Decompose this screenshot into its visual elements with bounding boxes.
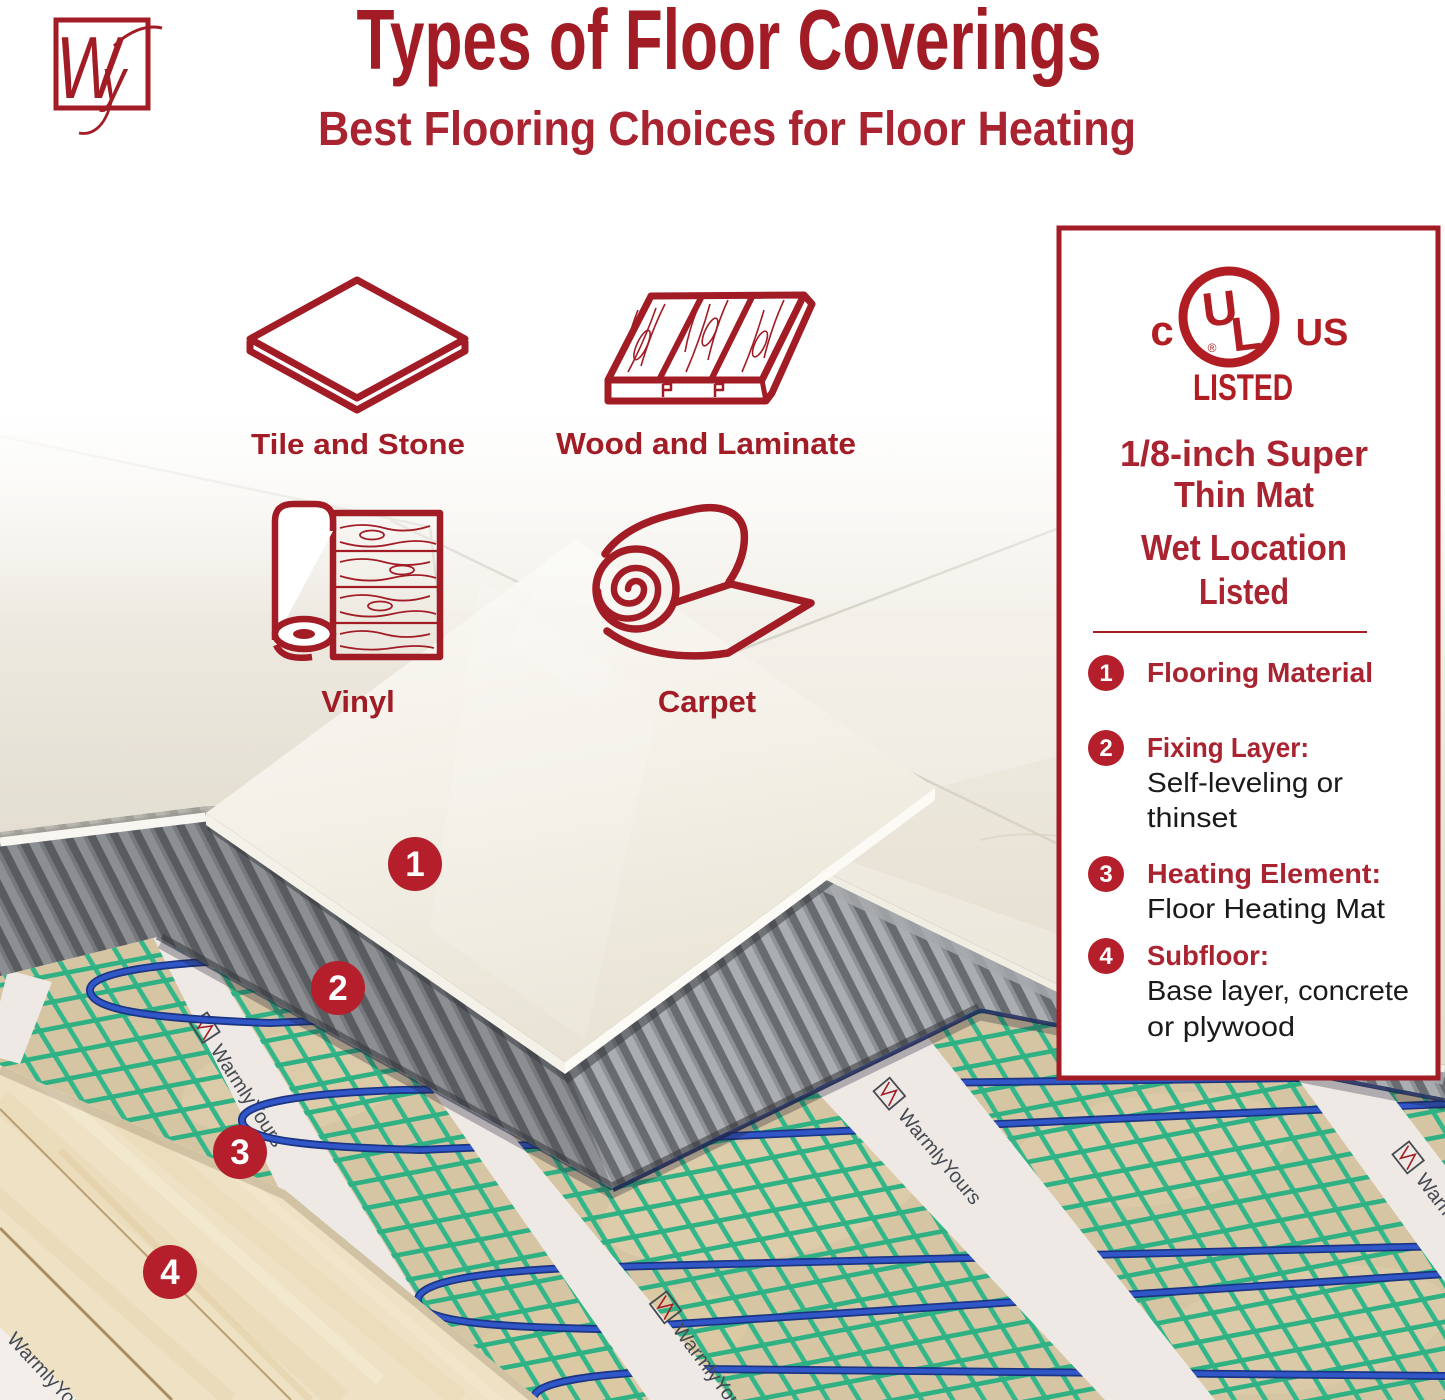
svg-text:Listed: Listed	[1199, 571, 1289, 612]
svg-text:Wet Location: Wet Location	[1141, 527, 1347, 568]
svg-text:2: 2	[328, 969, 347, 1008]
svg-text:Floor Heating Mat: Floor Heating Mat	[1147, 893, 1385, 924]
svg-text:Vinyl: Vinyl	[321, 684, 395, 719]
svg-text:1: 1	[405, 845, 424, 884]
svg-text:Fixing Layer:: Fixing Layer:	[1147, 732, 1309, 763]
svg-text:3: 3	[1099, 861, 1112, 888]
svg-text:c: c	[1150, 307, 1173, 354]
svg-text:1: 1	[1099, 660, 1112, 687]
svg-text:Wood and Laminate: Wood and Laminate	[556, 426, 856, 461]
svg-text:US: US	[1296, 312, 1349, 354]
svg-text:Subfloor:: Subfloor:	[1147, 940, 1269, 971]
svg-text:Carpet: Carpet	[658, 684, 756, 719]
svg-text:thinset: thinset	[1147, 802, 1237, 833]
svg-text:1/8-inch Super: 1/8-inch Super	[1120, 433, 1368, 474]
svg-text:Heating Element:: Heating Element:	[1147, 858, 1381, 889]
svg-text:or plywood: or plywood	[1147, 1011, 1295, 1042]
svg-text:Types of Floor Coverings: Types of Floor Coverings	[357, 0, 1102, 88]
svg-text:Thin Mat: Thin Mat	[1174, 474, 1314, 515]
svg-text:2: 2	[1099, 735, 1112, 762]
svg-text:Best Flooring Choices for Floo: Best Flooring Choices for Floor Heating	[318, 103, 1136, 156]
svg-text:3: 3	[230, 1133, 249, 1172]
svg-text:Tile and Stone: Tile and Stone	[251, 429, 465, 461]
svg-text:Self-leveling or: Self-leveling or	[1147, 767, 1343, 798]
svg-text:4: 4	[160, 1253, 180, 1292]
svg-text:4: 4	[1099, 943, 1113, 970]
svg-text:Flooring Material: Flooring Material	[1147, 657, 1373, 688]
svg-text:Base layer, concrete: Base layer, concrete	[1147, 975, 1409, 1006]
svg-text:®: ®	[1208, 341, 1217, 355]
svg-text:y: y	[99, 49, 129, 114]
svg-text:LISTED: LISTED	[1193, 367, 1293, 408]
